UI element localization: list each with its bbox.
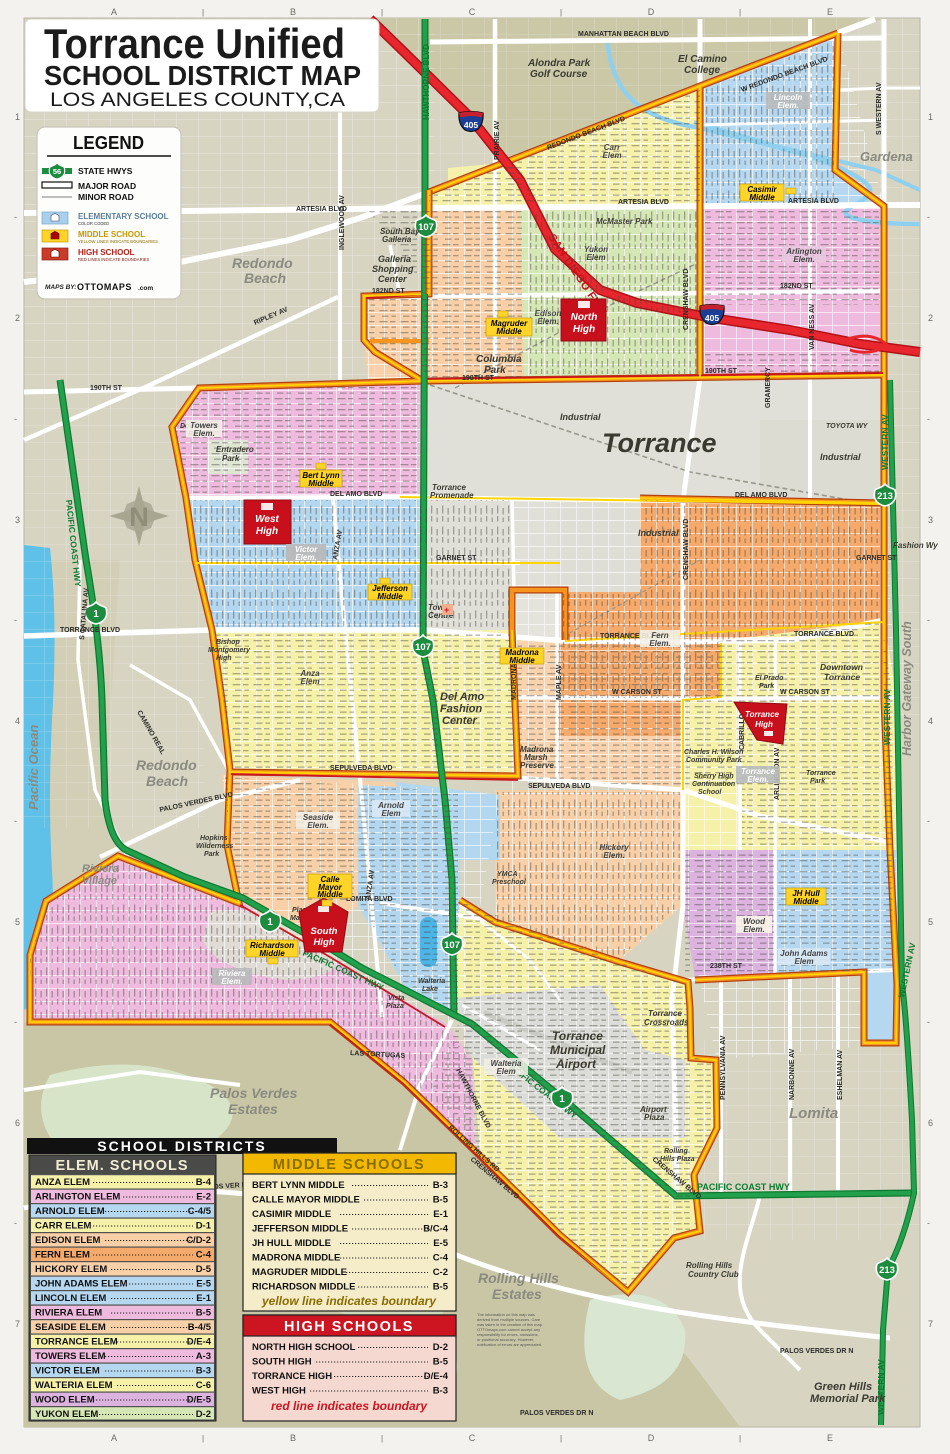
- svg-text:TORRANCE BLVD: TORRANCE BLVD: [60, 627, 120, 634]
- svg-text:WESTERN AV: WESTERN AV: [876, 1359, 886, 1415]
- svg-text:Middle: Middle: [509, 656, 535, 665]
- svg-text:Palos Verdes: Palos Verdes: [210, 1085, 298, 1101]
- svg-text:B-5: B-5: [433, 1282, 449, 1293]
- svg-text:-: -: [14, 414, 17, 424]
- svg-text:ELEM. SCHOOLS: ELEM. SCHOOLS: [55, 1158, 188, 1174]
- svg-text:Charles H. Wilson: Charles H. Wilson: [684, 749, 743, 756]
- svg-text:D/E-4: D/E-4: [187, 1337, 212, 1348]
- svg-text:W CARSON ST: W CARSON ST: [612, 689, 663, 696]
- svg-text:Golf Course: Golf Course: [530, 69, 588, 80]
- svg-text:Rolling Hills: Rolling Hills: [478, 1270, 559, 1286]
- svg-text:Rolling Hills: Rolling Hills: [686, 1261, 733, 1270]
- svg-text:Elem: Elem: [602, 151, 621, 160]
- svg-text:INGLEWOOD AV: INGLEWOOD AV: [339, 195, 346, 250]
- svg-text:VAN NESS AV: VAN NESS AV: [809, 304, 816, 350]
- svg-text:Industrial: Industrial: [638, 528, 679, 538]
- svg-text:Elem.: Elem.: [743, 925, 764, 934]
- svg-text:Elem: Elem: [381, 809, 400, 818]
- svg-text:Torrance: Torrance: [824, 672, 860, 682]
- svg-text:STATE HWYS: STATE HWYS: [78, 166, 133, 176]
- svg-text:MIDDLE SCHOOLS: MIDDLE SCHOOLS: [273, 1157, 425, 1173]
- svg-text:C-4: C-4: [196, 1250, 212, 1261]
- svg-text:B: B: [290, 1433, 296, 1443]
- svg-text:Middle: Middle: [259, 949, 285, 958]
- svg-text:TORRANCE HIGH: TORRANCE HIGH: [252, 1371, 332, 1382]
- svg-text:A-3: A-3: [196, 1351, 211, 1362]
- svg-text:SCHOOL DISTRICT MAP: SCHOOL DISTRICT MAP: [44, 60, 361, 91]
- svg-text:C-4: C-4: [433, 1253, 449, 1264]
- svg-text:-: -: [14, 816, 17, 826]
- svg-text:LINCOLN ELEM: LINCOLN ELEM: [35, 1293, 106, 1304]
- svg-text:4: 4: [928, 716, 933, 726]
- svg-text:Village: Village: [82, 875, 117, 887]
- svg-text:E-1: E-1: [433, 1209, 449, 1220]
- svg-text:D-5: D-5: [196, 1264, 212, 1275]
- svg-text:D: D: [648, 1433, 655, 1443]
- svg-text:JH HULL MIDDLE: JH HULL MIDDLE: [252, 1238, 331, 1249]
- svg-text:Preserve: Preserve: [520, 761, 554, 770]
- svg-text:405: 405: [464, 120, 478, 130]
- svg-text:DEL AMO BLVD: DEL AMO BLVD: [735, 492, 787, 499]
- svg-text:Gardena: Gardena: [860, 149, 913, 164]
- svg-text:Columbia: Columbia: [476, 354, 522, 365]
- svg-text:North: North: [571, 312, 598, 323]
- svg-text:1: 1: [559, 1094, 565, 1105]
- svg-text:Elem: Elem: [794, 957, 813, 966]
- svg-text:JEFFERSON MIDDLE: JEFFERSON MIDDLE: [252, 1224, 348, 1235]
- svg-text:E: E: [827, 7, 833, 17]
- svg-text:YMCA: YMCA: [497, 871, 518, 878]
- svg-text:D-1: D-1: [196, 1221, 212, 1232]
- svg-text:Middle: Middle: [377, 592, 403, 601]
- svg-text:1: 1: [15, 112, 20, 122]
- svg-text:SEPULVEDA BLVD: SEPULVEDA BLVD: [330, 765, 393, 772]
- svg-text:E-1: E-1: [196, 1293, 212, 1304]
- svg-text:JOHN ADAMS ELEM: JOHN ADAMS ELEM: [35, 1279, 128, 1290]
- svg-text:RICHARDSON MIDDLE: RICHARDSON MIDDLE: [252, 1282, 355, 1293]
- svg-text:D-2: D-2: [433, 1342, 448, 1353]
- svg-text:Promenade: Promenade: [430, 491, 474, 500]
- svg-text:MAPLE AV: MAPLE AV: [556, 664, 563, 700]
- svg-text:56: 56: [53, 167, 61, 176]
- svg-text:Estates: Estates: [228, 1101, 278, 1117]
- svg-text:-: -: [927, 1218, 930, 1228]
- svg-text:Preschool: Preschool: [492, 879, 527, 886]
- svg-text:Middle: Middle: [749, 193, 775, 202]
- svg-text:High: High: [755, 720, 773, 729]
- svg-text:CARR ELEM: CARR ELEM: [35, 1221, 92, 1232]
- svg-text:Middle: Middle: [793, 897, 819, 906]
- svg-text:B-3: B-3: [196, 1366, 211, 1377]
- svg-text:NARBONNE AV: NARBONNE AV: [789, 1048, 796, 1100]
- svg-text:RED LINES INDICATE BOUNDARIES: RED LINES INDICATE BOUNDARIES: [78, 257, 150, 262]
- svg-text:TORRANCE ELEM: TORRANCE ELEM: [35, 1337, 118, 1348]
- svg-text:Torrance: Torrance: [602, 428, 717, 458]
- svg-text:SEASIDE ELEM: SEASIDE ELEM: [35, 1322, 106, 1333]
- svg-text:DEL AMO BLVD: DEL AMO BLVD: [330, 491, 382, 498]
- svg-text:Elem.: Elem.: [537, 317, 558, 326]
- svg-text:107: 107: [444, 940, 460, 951]
- svg-text:WESTERN AV: WESTERN AV: [880, 414, 890, 470]
- svg-text:ARTESIA BLVD: ARTESIA BLVD: [618, 199, 669, 206]
- svg-text:LEGEND: LEGEND: [73, 133, 144, 153]
- svg-text:PENNSYLVANIA AV: PENNSYLVANIA AV: [720, 1035, 727, 1100]
- svg-text:Middle: Middle: [496, 327, 522, 336]
- svg-text:Del Amo: Del Amo: [440, 691, 484, 703]
- svg-text:B-4: B-4: [196, 1177, 212, 1188]
- svg-text:MIDDLE SCHOOL: MIDDLE SCHOOL: [78, 230, 145, 239]
- svg-text:Continuation: Continuation: [692, 781, 735, 788]
- svg-text:107: 107: [418, 222, 434, 233]
- svg-text:Lomita: Lomita: [789, 1105, 838, 1122]
- svg-text:Elem.: Elem.: [747, 775, 768, 784]
- svg-text:BERT LYNN MIDDLE: BERT LYNN MIDDLE: [252, 1180, 345, 1191]
- svg-text:B-3: B-3: [433, 1386, 448, 1397]
- svg-text:RIVIERA ELEM: RIVIERA ELEM: [35, 1308, 102, 1319]
- svg-text:McMaster Park: McMaster Park: [596, 217, 653, 226]
- svg-text:3: 3: [15, 515, 20, 525]
- svg-text:High: High: [256, 526, 278, 537]
- svg-text:Vista: Vista: [388, 995, 405, 1002]
- svg-text:Center: Center: [442, 715, 478, 727]
- svg-text:4: 4: [15, 716, 20, 726]
- svg-text:Galleria: Galleria: [382, 235, 412, 244]
- svg-text:3: 3: [928, 515, 933, 525]
- svg-text:D/E-5: D/E-5: [187, 1395, 212, 1406]
- svg-text:E-5: E-5: [433, 1238, 449, 1249]
- svg-text:C-4/5: C-4/5: [188, 1206, 212, 1217]
- svg-text:Beach: Beach: [244, 270, 286, 286]
- svg-text:YUKON ELEM: YUKON ELEM: [35, 1409, 98, 1420]
- svg-text:YELLOW LINES INDICATE BOUNDARI: YELLOW LINES INDICATE BOUNDARIES: [78, 239, 158, 244]
- svg-text:Industrial: Industrial: [560, 412, 601, 422]
- svg-text:Plaza: Plaza: [644, 1113, 665, 1122]
- svg-text:Park: Park: [810, 778, 826, 785]
- svg-text:CASIMIR MIDDLE: CASIMIR MIDDLE: [252, 1209, 331, 1220]
- svg-text:Middle: Middle: [308, 479, 334, 488]
- svg-text:N: N: [129, 502, 149, 532]
- svg-text:El Camino: El Camino: [678, 54, 727, 65]
- svg-text:5: 5: [928, 917, 933, 927]
- svg-text:Sherry High: Sherry High: [694, 773, 734, 780]
- svg-text:|: |: [739, 1434, 741, 1443]
- svg-text:MADRONA MIDDLE: MADRONA MIDDLE: [252, 1253, 340, 1264]
- svg-text:Elem.: Elem.: [221, 977, 242, 986]
- svg-text:Hills Plaza: Hills Plaza: [660, 1156, 695, 1163]
- svg-text:Shopping: Shopping: [372, 264, 414, 274]
- svg-text:MINOR ROAD: MINOR ROAD: [78, 192, 134, 202]
- svg-text:-: -: [927, 414, 930, 424]
- svg-text:-: -: [14, 1017, 17, 1027]
- svg-text:Wilderness: Wilderness: [196, 843, 233, 850]
- svg-text:1: 1: [93, 609, 99, 620]
- svg-text:5: 5: [15, 917, 20, 927]
- svg-text:South: South: [311, 926, 338, 937]
- svg-text:TOYOTA WY: TOYOTA WY: [826, 423, 869, 430]
- svg-text:B-4/5: B-4/5: [188, 1322, 212, 1333]
- svg-text:Park: Park: [222, 454, 240, 463]
- svg-text:CALLE MAYOR MIDDLE: CALLE MAYOR MIDDLE: [252, 1195, 360, 1206]
- svg-text:ESHELMAN AV: ESHELMAN AV: [837, 1050, 844, 1101]
- svg-text:Plaza: Plaza: [386, 1003, 404, 1010]
- svg-text:Country Club: Country Club: [688, 1270, 739, 1279]
- svg-text:Riviera: Riviera: [82, 863, 119, 875]
- svg-text:School: School: [698, 789, 722, 796]
- svg-text:Lake: Lake: [422, 986, 438, 993]
- svg-text:GRAMERCY: GRAMERCY: [765, 367, 772, 408]
- svg-text:C: C: [469, 1433, 476, 1443]
- svg-text:107: 107: [415, 642, 431, 653]
- svg-text:B-5: B-5: [433, 1357, 449, 1368]
- svg-text:TORRANCE BLVD: TORRANCE BLVD: [794, 631, 854, 638]
- svg-text:B: B: [290, 7, 296, 17]
- svg-text:Torrance: Torrance: [552, 1029, 603, 1043]
- svg-text:MAGRUDER MIDDLE: MAGRUDER MIDDLE: [252, 1267, 347, 1278]
- svg-text:SCHOOL DISTRICTS: SCHOOL DISTRICTS: [97, 1138, 266, 1154]
- svg-text:Elem.: Elem.: [793, 255, 814, 264]
- svg-text:Crossroads: Crossroads: [644, 1018, 689, 1027]
- svg-text:-: -: [14, 615, 17, 625]
- svg-text:|: |: [202, 8, 204, 17]
- svg-text:CRENSHAW BLVD: CRENSHAW BLVD: [683, 519, 690, 580]
- svg-text:GARNET ST: GARNET ST: [436, 555, 477, 562]
- svg-text:WALTERIA ELEM: WALTERIA ELEM: [35, 1380, 113, 1391]
- svg-text:Middle: Middle: [317, 890, 343, 899]
- svg-text:238TH ST: 238TH ST: [710, 963, 743, 970]
- svg-text:C-2: C-2: [433, 1267, 448, 1278]
- svg-text:-: -: [14, 1218, 17, 1228]
- svg-text:Elem: Elem: [300, 677, 319, 686]
- svg-text:ARNOLD ELEM: ARNOLD ELEM: [35, 1206, 105, 1217]
- svg-text:Walteria: Walteria: [418, 978, 445, 985]
- svg-text:Elem.: Elem.: [649, 639, 670, 648]
- svg-text:Pacific Ocean: Pacific Ocean: [26, 725, 41, 810]
- svg-text:MANHATTAN BEACH BLVD: MANHATTAN BEACH BLVD: [578, 31, 669, 38]
- svg-text:OTTOMAPS: OTTOMAPS: [77, 282, 132, 292]
- svg-text:1: 1: [267, 917, 273, 928]
- svg-text:A: A: [111, 1433, 117, 1443]
- svg-text:-: -: [927, 816, 930, 826]
- svg-text:High: High: [573, 324, 595, 335]
- svg-text:GARNET ST: GARNET ST: [856, 555, 897, 562]
- svg-text:Redondo: Redondo: [232, 255, 293, 271]
- svg-text:.com: .com: [138, 285, 153, 292]
- svg-text:Airport: Airport: [555, 1057, 597, 1071]
- svg-text:High: High: [313, 937, 334, 948]
- svg-text:Municipal: Municipal: [550, 1043, 606, 1057]
- svg-text:MAJOR ROAD: MAJOR ROAD: [78, 181, 136, 191]
- svg-text:|: |: [202, 1434, 204, 1443]
- svg-text:EDISON ELEM: EDISON ELEM: [35, 1235, 101, 1246]
- svg-text:B-5: B-5: [196, 1308, 212, 1319]
- svg-text:Beach: Beach: [146, 773, 188, 789]
- svg-text:1: 1: [928, 112, 933, 122]
- svg-text:Montgomery: Montgomery: [208, 647, 251, 654]
- svg-text:SEPULVEDA BLVD: SEPULVEDA BLVD: [528, 783, 591, 790]
- svg-text:S WESTERN AV: S WESTERN AV: [876, 82, 883, 135]
- svg-text:CRENSHAW BLVD: CRENSHAW BLVD: [683, 269, 690, 330]
- svg-text:ANZA ELEM: ANZA ELEM: [35, 1177, 90, 1188]
- svg-text:Park: Park: [204, 851, 220, 858]
- svg-text:Bishop: Bishop: [216, 639, 240, 646]
- svg-text:Fashion: Fashion: [440, 703, 482, 715]
- svg-text:Green Hills: Green Hills: [814, 1381, 872, 1393]
- svg-text:Redondo: Redondo: [136, 757, 197, 773]
- svg-text:Industrial: Industrial: [820, 452, 861, 462]
- svg-text:LOS ANGELES COUNTY,CA: LOS ANGELES COUNTY,CA: [50, 90, 345, 111]
- svg-text:red line indicates boundary: red line indicates boundary: [271, 1399, 428, 1413]
- svg-text:TOWERS ELEM: TOWERS ELEM: [35, 1351, 106, 1362]
- svg-text:Hopkins: Hopkins: [200, 835, 228, 842]
- svg-text:Elem.: Elem.: [193, 429, 214, 438]
- svg-text:Entradero: Entradero: [216, 445, 254, 454]
- svg-text:405: 405: [705, 313, 719, 323]
- svg-text:HICKORY ELEM: HICKORY ELEM: [35, 1264, 107, 1275]
- svg-text:B-5: B-5: [433, 1195, 449, 1206]
- svg-text:+: +: [444, 605, 449, 615]
- svg-text:B-3: B-3: [433, 1180, 448, 1191]
- svg-text:213: 213: [877, 491, 893, 502]
- svg-text:E-2: E-2: [196, 1192, 211, 1203]
- svg-text:yellow line indicates boundary: yellow line indicates boundary: [261, 1294, 437, 1308]
- svg-text:Torrance: Torrance: [648, 1009, 682, 1018]
- svg-text:Elem.: Elem.: [777, 101, 798, 110]
- svg-text:Elem.: Elem.: [603, 851, 624, 860]
- svg-text:West: West: [255, 514, 279, 525]
- svg-text:High: High: [216, 655, 232, 662]
- svg-text:6: 6: [15, 1118, 20, 1128]
- svg-text:Elem.: Elem.: [295, 553, 316, 562]
- svg-text:190TH ST: 190TH ST: [462, 375, 495, 382]
- svg-text:|: |: [381, 8, 383, 17]
- svg-text:Fashion Wy: Fashion Wy: [893, 541, 938, 550]
- svg-text:SOUTH HIGH: SOUTH HIGH: [252, 1357, 312, 1368]
- svg-text:190TH ST: 190TH ST: [705, 368, 738, 375]
- svg-text:Elem: Elem: [496, 1067, 515, 1076]
- svg-text:Center: Center: [378, 274, 407, 284]
- svg-text:Downtown: Downtown: [820, 662, 863, 672]
- svg-text:C: C: [469, 7, 476, 17]
- svg-text:MAPS BY:: MAPS BY:: [45, 284, 76, 291]
- svg-text:|: |: [381, 1434, 383, 1443]
- svg-text:2: 2: [928, 313, 933, 323]
- svg-text:Memorial Park: Memorial Park: [810, 1393, 886, 1405]
- svg-text:WEST HIGH: WEST HIGH: [252, 1386, 306, 1397]
- svg-text:HIGH SCHOOLS: HIGH SCHOOLS: [284, 1319, 414, 1335]
- svg-text:190TH ST: 190TH ST: [90, 385, 123, 392]
- svg-text:College: College: [684, 65, 721, 76]
- svg-text:PRAIRIE AV: PRAIRIE AV: [494, 120, 501, 160]
- svg-text:Community Park: Community Park: [686, 757, 743, 764]
- svg-text:213: 213: [879, 1265, 895, 1276]
- svg-text:2: 2: [15, 313, 20, 323]
- svg-text:-: -: [927, 1017, 930, 1027]
- svg-text:Harbor Gateway South: Harbor Gateway South: [900, 621, 914, 756]
- svg-text:PACIFIC COAST HWY: PACIFIC COAST HWY: [697, 1182, 790, 1192]
- svg-text:182ND ST: 182ND ST: [780, 283, 813, 290]
- svg-text:Torrance: Torrance: [806, 770, 836, 777]
- svg-text:-: -: [927, 212, 930, 222]
- svg-text:Galleria: Galleria: [378, 254, 411, 264]
- svg-text:W CARSON ST: W CARSON ST: [780, 689, 831, 696]
- svg-text:-: -: [14, 212, 17, 222]
- svg-text:Elem.: Elem.: [307, 821, 328, 830]
- svg-text:ELEMENTARY SCHOOL: ELEMENTARY SCHOOL: [78, 212, 169, 221]
- svg-text:-: -: [927, 615, 930, 625]
- svg-text:ARTESIA BLVD: ARTESIA BLVD: [788, 198, 839, 205]
- svg-text:HIGH SCHOOL: HIGH SCHOOL: [78, 248, 135, 257]
- svg-text:7: 7: [15, 1319, 20, 1329]
- svg-text:El Prado: El Prado: [755, 675, 784, 682]
- svg-text:Estates: Estates: [492, 1286, 542, 1302]
- svg-text:E-5: E-5: [196, 1279, 212, 1290]
- svg-text:FERN ELEM: FERN ELEM: [35, 1250, 90, 1261]
- svg-text:Alondra Park: Alondra Park: [527, 58, 591, 69]
- svg-text:Park: Park: [759, 683, 775, 690]
- svg-text:NORTH HIGH SCHOOL: NORTH HIGH SCHOOL: [252, 1342, 356, 1353]
- svg-text:|: |: [739, 8, 741, 17]
- svg-text:VICTOR ELEM: VICTOR ELEM: [35, 1366, 100, 1377]
- svg-text:Torrance: Torrance: [745, 710, 779, 719]
- svg-text:PALOS VERDES DR N: PALOS VERDES DR N: [780, 1348, 853, 1355]
- svg-text:A: A: [111, 7, 117, 17]
- svg-text:WOOD ELEM: WOOD ELEM: [35, 1395, 95, 1406]
- svg-text:D-2: D-2: [196, 1409, 211, 1420]
- svg-text:ARLINGTON ELEM: ARLINGTON ELEM: [35, 1192, 120, 1203]
- svg-text:|: |: [560, 8, 562, 17]
- svg-text:182ND ST: 182ND ST: [372, 288, 405, 295]
- svg-text:Elem: Elem: [586, 253, 605, 262]
- svg-text:PALOS VERDES DR N: PALOS VERDES DR N: [520, 1410, 593, 1417]
- svg-text:E: E: [827, 1433, 833, 1443]
- svg-text:D: D: [648, 7, 655, 17]
- svg-text:7: 7: [928, 1319, 933, 1329]
- svg-text:notification of errors are app: notification of errors are appreciated.: [477, 1342, 542, 1347]
- svg-text:C-6: C-6: [196, 1380, 211, 1391]
- svg-text:HAWTHORNE BLVD: HAWTHORNE BLVD: [422, 44, 431, 120]
- svg-text:Rolling: Rolling: [664, 1148, 688, 1155]
- svg-text:6: 6: [928, 1118, 933, 1128]
- svg-text:|: |: [560, 1434, 562, 1443]
- svg-text:COLOR CODED: COLOR CODED: [78, 221, 109, 226]
